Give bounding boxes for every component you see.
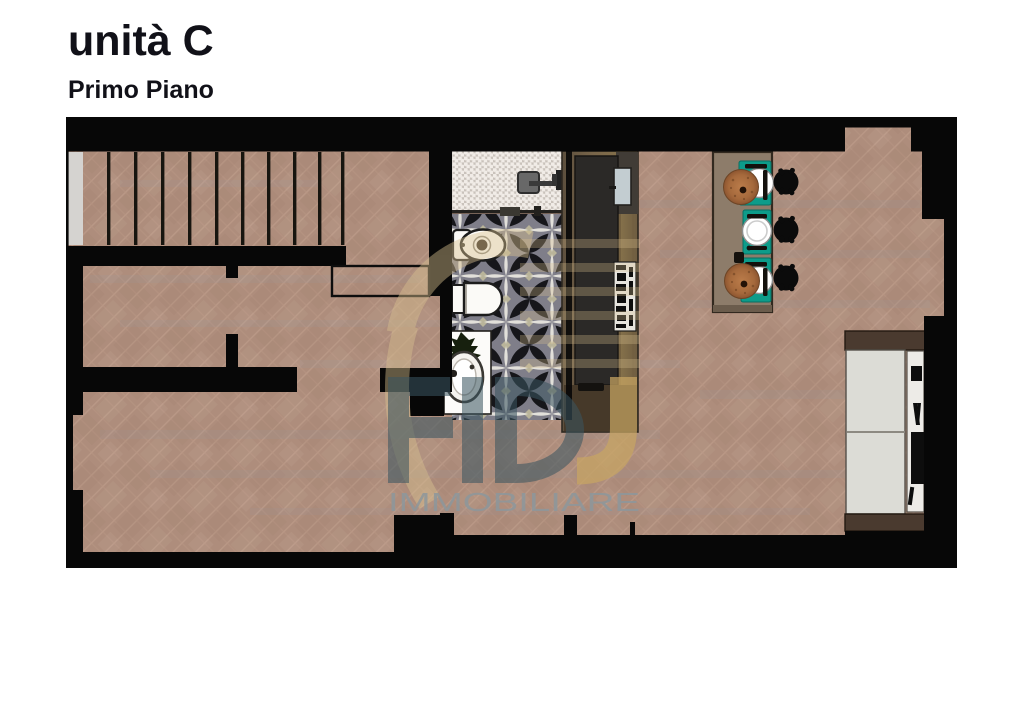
svg-text:Primo Piano: Primo Piano: [68, 76, 214, 104]
svg-text:unità C: unità C: [68, 17, 214, 65]
svg-text:IMMOBILIARE: IMMOBILIARE: [388, 487, 640, 517]
